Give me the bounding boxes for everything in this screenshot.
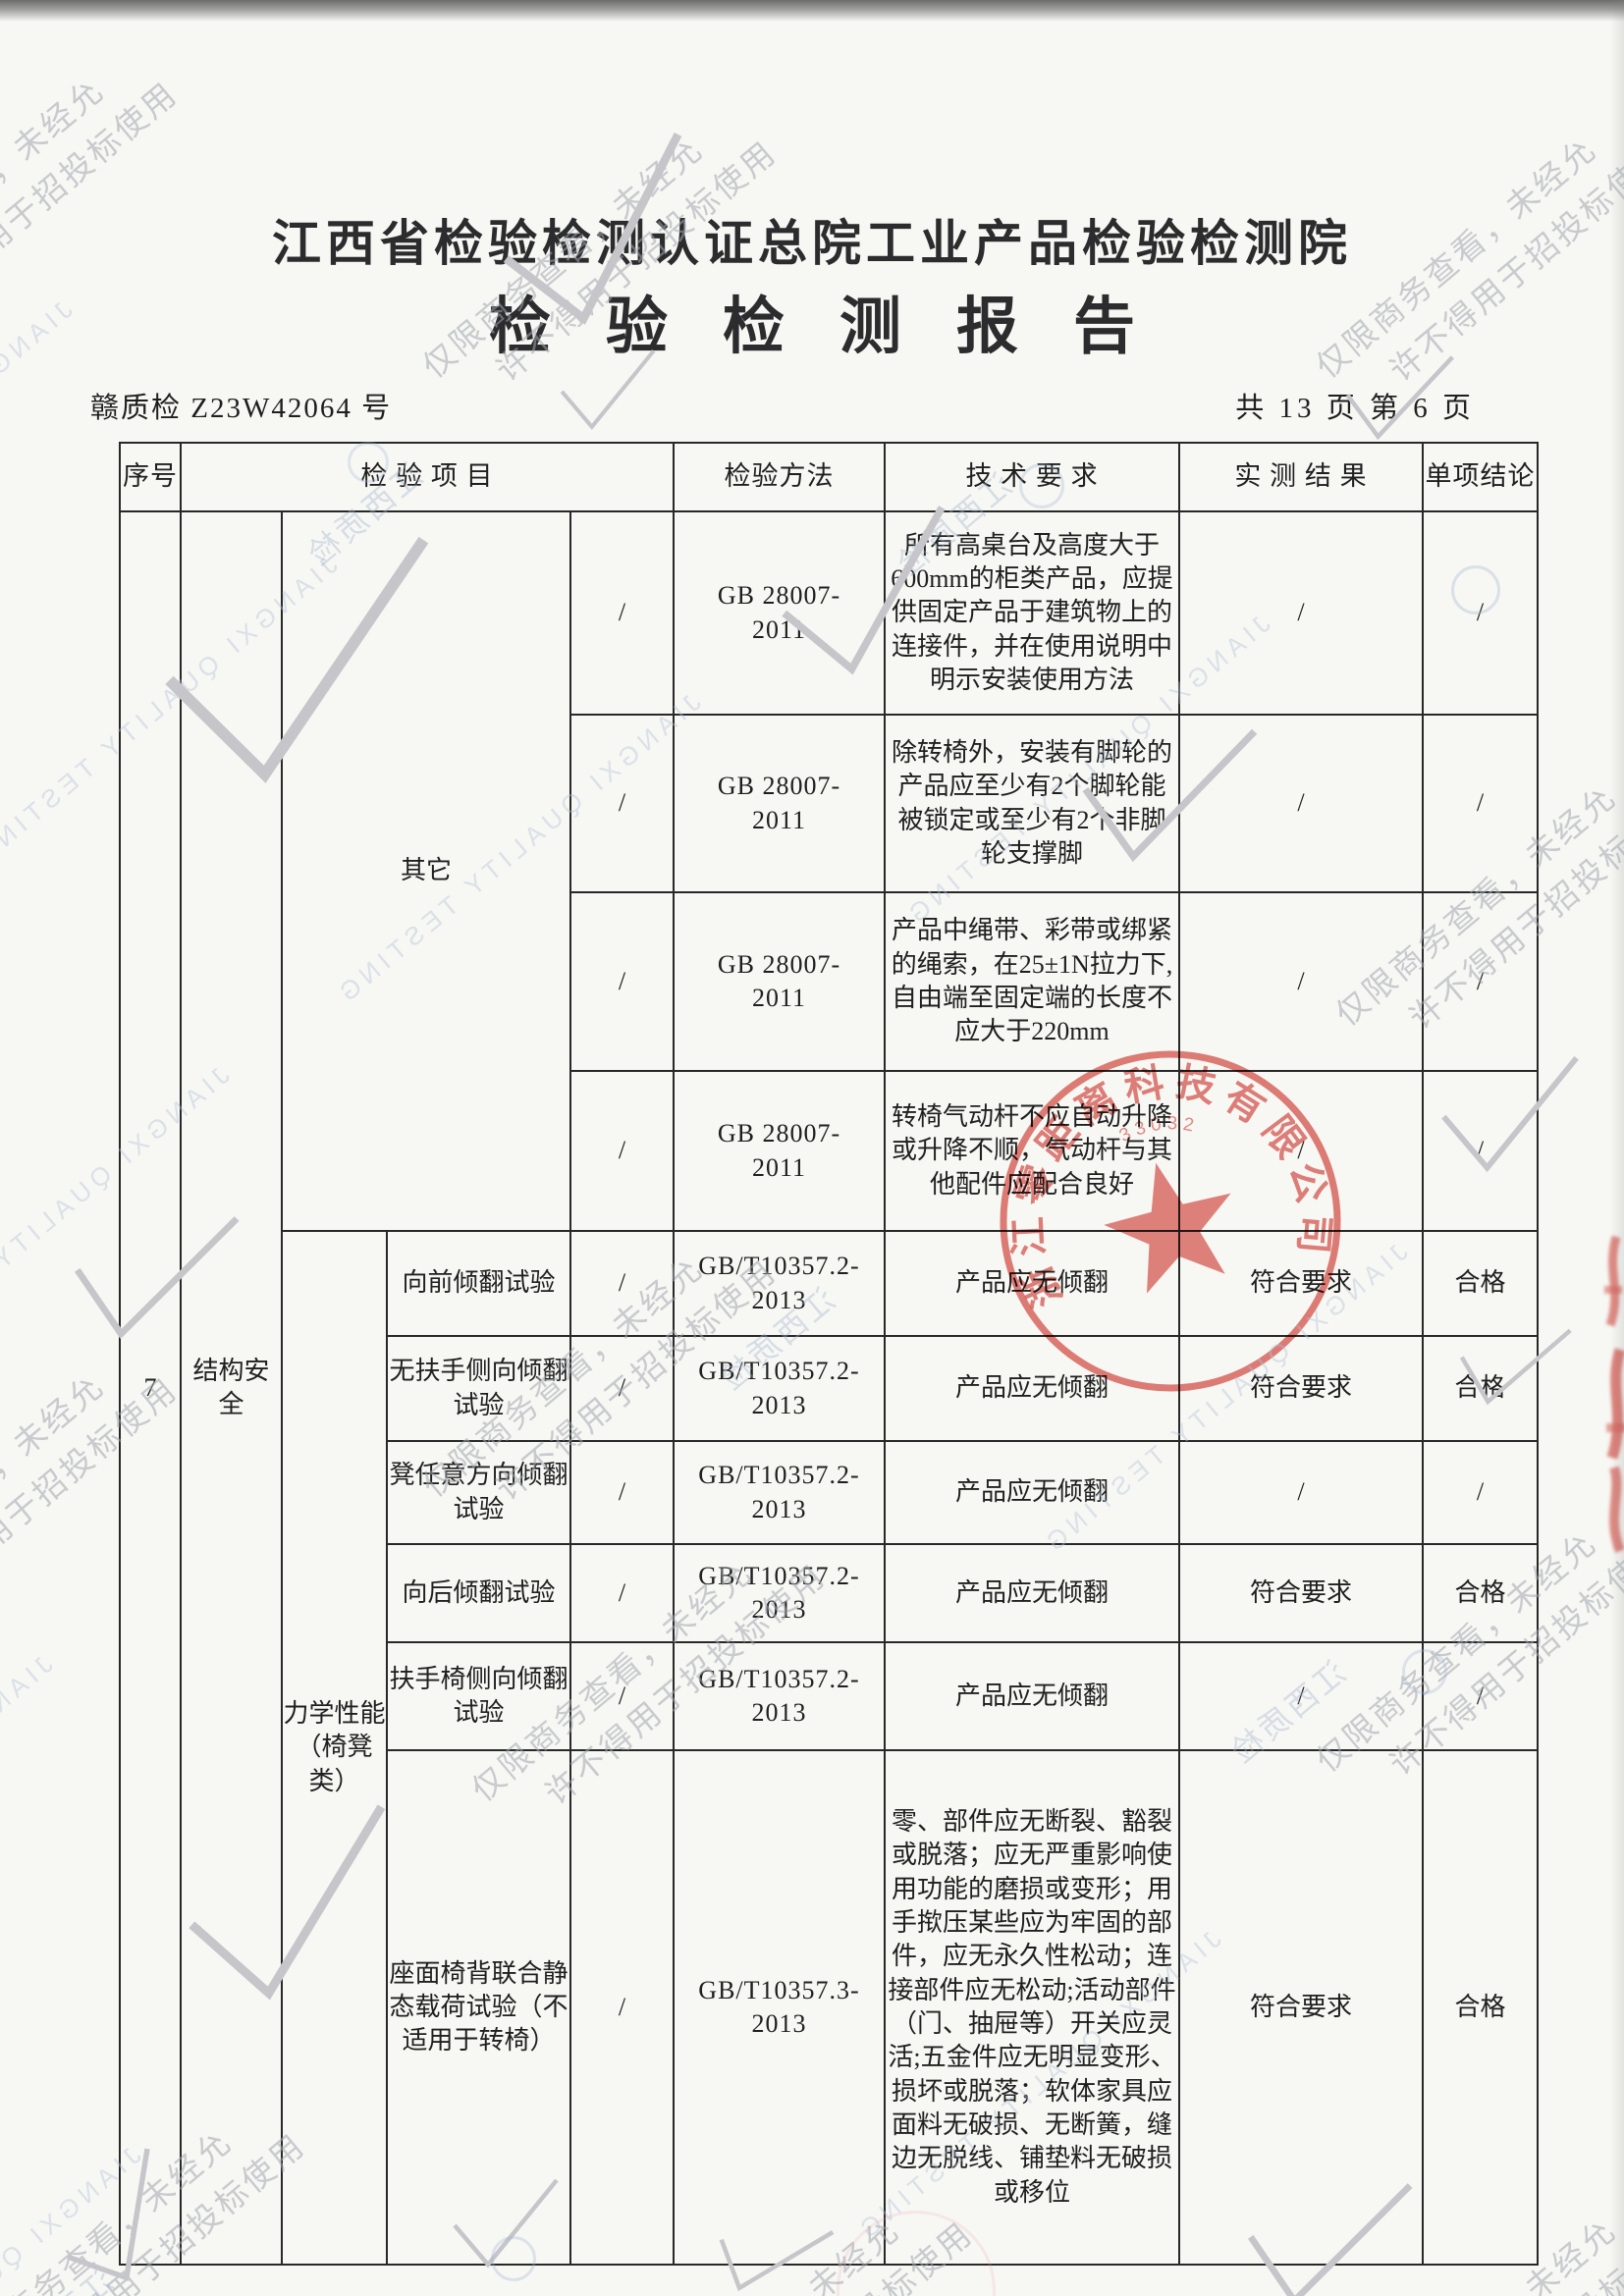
conclusion-cell: 合格 bbox=[1423, 1231, 1538, 1336]
method-cell: GB/T10357.2- 2013 bbox=[674, 1642, 885, 1750]
result-cell: / bbox=[1179, 1441, 1423, 1544]
scanned-report-page: 江西省检验检测认证总院工业产品检验检测院 检验检测报告 赣质检 Z23W4206… bbox=[0, 0, 1624, 2296]
requirement-cell: 产品应无倾翻 bbox=[885, 1336, 1179, 1441]
conclusion-cell: 合格 bbox=[1423, 1336, 1538, 1441]
method-cell: GB/T10357.2- 2013 bbox=[674, 1336, 885, 1441]
col-header-serial: 序号 bbox=[120, 443, 181, 511]
conclusion-cell: / bbox=[1423, 1071, 1538, 1231]
method-cell: GB/T10357.2- 2013 bbox=[674, 1544, 885, 1642]
slash-cell: / bbox=[570, 511, 674, 715]
method-cell: GB/T10357.2- 2013 bbox=[674, 1231, 885, 1336]
page-count-info: 共 13 页 第 6 页 bbox=[1235, 385, 1475, 426]
col-header-method: 检验方法 bbox=[674, 443, 885, 511]
col-header-conclusion: 单项结论 bbox=[1423, 443, 1538, 511]
report-title: 检验检测报告 bbox=[0, 277, 1624, 366]
method-cell: GB/T10357.2- 2013 bbox=[674, 1441, 885, 1544]
item-name-cell: 凳任意方向倾翻试验 bbox=[387, 1441, 570, 1544]
subcategory-mechanical-cell: 力学性能（椅凳类） bbox=[282, 1231, 387, 2265]
requirement-cell: 产品应无倾翻 bbox=[885, 1441, 1179, 1544]
inspection-table: 序号 检 验 项 目 检验方法 技 术 要 求 实 测 结 果 单项结论 7 结… bbox=[119, 442, 1539, 2266]
result-cell: / bbox=[1179, 511, 1423, 715]
col-header-requirement: 技 术 要 求 bbox=[885, 443, 1179, 511]
report-number: 赣质检 Z23W42064 号 bbox=[90, 385, 392, 426]
slash-cell: / bbox=[570, 892, 674, 1071]
method-cell: GB 28007- 2011 bbox=[674, 511, 885, 715]
table-row: 7 结构安全 其它 / GB 28007- 2011 所有高桌台及高度大于600… bbox=[120, 511, 1538, 715]
slash-cell: / bbox=[570, 715, 674, 892]
method-cell: GB 28007- 2011 bbox=[674, 715, 885, 892]
slash-cell: / bbox=[570, 1750, 674, 2265]
requirement-cell: 转椅气动杆不应自动升降或升降不顺，气动杆与其他配件应配合良好 bbox=[885, 1071, 1179, 1231]
method-cell: GB 28007- 2011 bbox=[674, 892, 885, 1071]
category-cell: 结构安全 bbox=[181, 511, 282, 2265]
result-cell: / bbox=[1179, 892, 1423, 1071]
slash-cell: / bbox=[570, 1071, 674, 1231]
result-cell: / bbox=[1179, 1642, 1423, 1750]
item-name-cell: 无扶手侧向倾翻试验 bbox=[387, 1336, 570, 1441]
ghost-mirrored-text: JIANGXI QUALITY TESTING bbox=[0, 1649, 59, 1973]
result-cell: 符合要求 bbox=[1179, 1231, 1423, 1336]
item-name-cell: 向前倾翻试验 bbox=[387, 1231, 570, 1336]
col-header-item: 检 验 项 目 bbox=[181, 443, 674, 511]
conclusion-cell: 合格 bbox=[1423, 1544, 1538, 1642]
item-name-cell: 向后倾翻试验 bbox=[387, 1544, 570, 1642]
slash-cell: / bbox=[570, 1336, 674, 1441]
requirement-cell: 产品应无倾翻 bbox=[885, 1231, 1179, 1336]
requirement-cell: 产品应无倾翻 bbox=[885, 1544, 1179, 1642]
conclusion-cell: / bbox=[1423, 1441, 1538, 1544]
col-header-result: 实 测 结 果 bbox=[1179, 443, 1423, 511]
conclusion-cell: / bbox=[1423, 511, 1538, 715]
method-cell: GB 28007- 2011 bbox=[674, 1071, 885, 1231]
requirement-cell: 除转椅外，安装有脚轮的产品应至少有2个脚轮能被锁定或至少有2个非脚轮支撑脚 bbox=[885, 715, 1179, 892]
requirement-cell: 零、部件应无断裂、豁裂或脱落；应无严重影响使用功能的磨损或变形；用手揿压某些应为… bbox=[885, 1750, 1179, 2265]
conclusion-cell: / bbox=[1423, 715, 1538, 892]
method-cell: GB/T10357.3- 2013 bbox=[674, 1750, 885, 2265]
slash-cell: / bbox=[570, 1231, 674, 1336]
result-cell: / bbox=[1179, 715, 1423, 892]
conclusion-cell: / bbox=[1423, 892, 1538, 1071]
slash-cell: / bbox=[570, 1441, 674, 1544]
item-name-cell: 座面椅背联合静态载荷试验（不适用于转椅） bbox=[387, 1750, 570, 2265]
organization-title: 江西省检验检测认证总院工业产品检验检测院 bbox=[0, 204, 1624, 275]
scan-edge-shadow-top bbox=[0, 0, 1624, 22]
table-row: 力学性能（椅凳类） 向前倾翻试验 / GB/T10357.2- 2013 产品应… bbox=[120, 1231, 1538, 1336]
result-cell: / bbox=[1179, 1071, 1423, 1231]
conclusion-cell: / bbox=[1423, 1642, 1538, 1750]
result-cell: 符合要求 bbox=[1179, 1750, 1423, 2265]
slash-cell: / bbox=[570, 1642, 674, 1750]
serial-number-cell: 7 bbox=[120, 511, 181, 2265]
item-name-cell: 扶手椅侧向倾翻试验 bbox=[387, 1642, 570, 1750]
requirement-cell: 产品中绳带、彩带或绑紧的绳索，在25±1N拉力下,自由端至固定端的长度不应大于2… bbox=[885, 892, 1179, 1071]
subcategory-other-cell: 其它 bbox=[282, 511, 570, 1231]
requirement-cell: 产品应无倾翻 bbox=[885, 1642, 1179, 1750]
conclusion-cell: 合格 bbox=[1423, 1750, 1538, 2265]
result-cell: 符合要求 bbox=[1179, 1336, 1423, 1441]
slash-cell: / bbox=[570, 1544, 674, 1642]
ghost-mirrored-text-cn: 江西质检 bbox=[0, 2258, 123, 2296]
result-cell: 符合要求 bbox=[1179, 1544, 1423, 1642]
requirement-cell: 所有高桌台及高度大于600mm的柜类产品，应提供固定产品于建筑物上的连接件，并在… bbox=[885, 511, 1179, 715]
table-header-row: 序号 检 验 项 目 检验方法 技 术 要 求 实 测 结 果 单项结论 bbox=[120, 443, 1538, 511]
